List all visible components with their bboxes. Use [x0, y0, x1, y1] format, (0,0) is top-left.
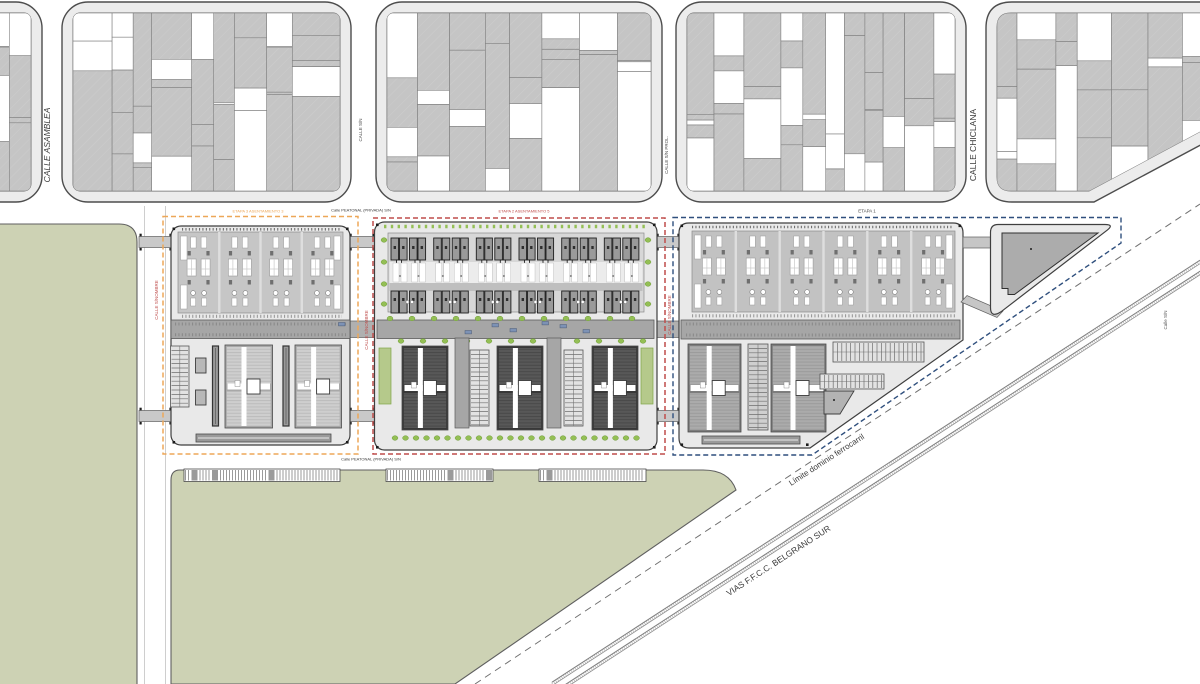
svg-text:Calle S/N: Calle S/N	[1163, 310, 1168, 329]
svg-text:CALLE S/N PROL.: CALLE S/N PROL.	[664, 136, 669, 174]
svg-text:ETAPA 2 ASENTAMIENTO 5: ETAPA 2 ASENTAMIENTO 5	[498, 209, 550, 214]
svg-text:CALLE S/NOMBRE: CALLE S/NOMBRE	[364, 310, 369, 350]
svg-text:ETAPA 3 ASENTAMIENTO 3: ETAPA 3 ASENTAMIENTO 3	[232, 209, 284, 214]
svg-text:CALLE S/NOMBRE: CALLE S/NOMBRE	[667, 295, 672, 335]
svg-text:Calle PEATONAL (PRIVADA) S/N: Calle PEATONAL (PRIVADA) S/N	[341, 457, 401, 462]
svg-text:CALLE S/NOMBRE: CALLE S/NOMBRE	[154, 280, 159, 320]
svg-text:ETAPA 1: ETAPA 1	[858, 209, 876, 214]
svg-text:CALLE S/N: CALLE S/N	[358, 118, 363, 141]
svg-text:Calle PEATONAL (PRIVADA) S/N: Calle PEATONAL (PRIVADA) S/N	[331, 208, 391, 213]
svg-text:CALLE ASAMBLEA: CALLE ASAMBLEA	[42, 107, 52, 182]
svg-text:CALLE CHICLANA: CALLE CHICLANA	[968, 109, 978, 182]
